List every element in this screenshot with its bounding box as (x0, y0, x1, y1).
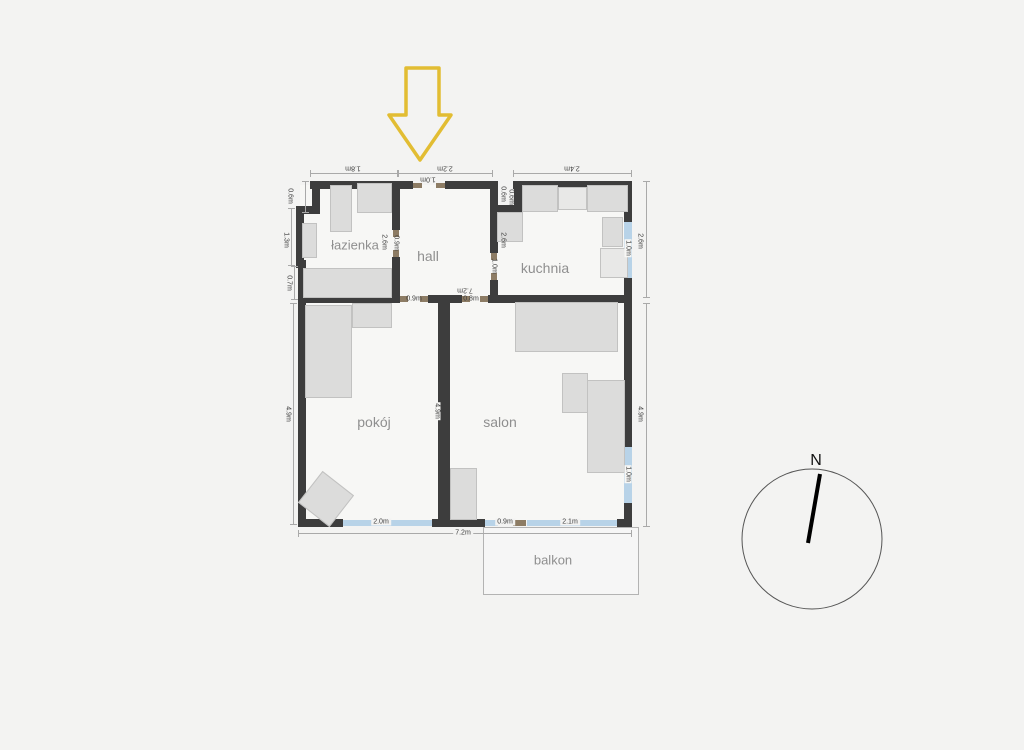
compass-north-label: N (810, 452, 822, 470)
wall-hall-right-lower (490, 280, 498, 303)
living-sofa (515, 302, 618, 352)
entrance-door-mark-right (436, 183, 445, 188)
dim-line-top-kitchen (513, 173, 632, 174)
dim-living-bottom-window: 2.1m (560, 519, 580, 526)
wall-bottom-right-corner (617, 519, 632, 527)
dim-left-room: 4.9m (285, 406, 292, 422)
dim-line-right-kitchen (646, 181, 647, 298)
dim-line-right-living (646, 303, 647, 527)
dim-bathroom-wall: 2.6m (381, 234, 388, 250)
wall-shaft-right (514, 181, 522, 213)
wall-right-middle (624, 278, 632, 447)
dim-divider-wall: 4.9m (434, 402, 441, 420)
dim-right-kitchen: 2.6m (637, 233, 644, 249)
bathroom-cabinet (357, 183, 392, 213)
room-label-balcony: balkon (534, 553, 572, 568)
living-table (450, 468, 477, 520)
compass-icon (738, 466, 886, 612)
bathroom-washer (330, 185, 352, 232)
living-door-mark-right (480, 296, 488, 302)
dim-shaft-width: 0.6m (500, 186, 507, 202)
dim-living-door: 0.8m (463, 296, 479, 303)
wall-hall-left-upper (392, 181, 400, 230)
kitchen-counter-middle (558, 187, 587, 210)
room-label-kitchen: kuchnia (521, 260, 569, 276)
dim-room-door: 0.9m (406, 296, 422, 303)
room-label-living: salon (483, 414, 516, 430)
dim-entrance-door: 1.0m (420, 176, 436, 183)
dim-shaft-height: 0.6m (508, 189, 515, 205)
dim-right-living: 4.9m (637, 406, 644, 422)
dim-line-top-hall (398, 173, 493, 174)
wall-hall-left-lower (392, 257, 400, 303)
bathroom-bathtub (303, 268, 392, 298)
balcony-door (513, 520, 526, 526)
living-couch (587, 380, 625, 473)
dim-kitchen-window: 1.0m (625, 239, 632, 257)
dim-room-window: 2.0m (371, 519, 391, 526)
dim-kitchen-wall: 2.6m (500, 232, 507, 248)
dim-left-lower: 0.7m (286, 275, 293, 291)
kitchen-counter-right (587, 185, 628, 212)
dim-top-hall: 2.2m (437, 165, 453, 172)
dim-line-top-bathroom (310, 173, 398, 174)
dim-line-left-room (293, 303, 294, 525)
wall-mid-stub (428, 295, 462, 303)
room-label-hall: hall (417, 248, 439, 264)
entrance-arrow-icon (383, 60, 459, 168)
dim-top-bathroom: 1.8m (345, 165, 361, 172)
bathroom-sink (302, 223, 317, 258)
wall-hall-top-right (445, 181, 493, 189)
dim-total-width: 7.2m (453, 530, 473, 537)
kitchen-stove (602, 217, 623, 247)
living-couch-corner (562, 373, 588, 413)
room-wardrobe (305, 305, 352, 398)
dim-left-upper: 0.6m (287, 188, 294, 204)
room-label-room: pokój (357, 414, 390, 430)
dim-balcony-door: 0.9m (495, 519, 515, 526)
dim-kitchen-door: 1.0m (491, 258, 498, 274)
dim-hall-interior-width: 7.2m (457, 287, 473, 294)
dim-living-window: 1.0m (625, 465, 632, 483)
dim-line-left-lower (294, 266, 295, 300)
room-label-bathroom: łazienka (331, 238, 379, 253)
dim-left-middle: 1.3m (283, 232, 290, 248)
entrance-door-mark-left (413, 183, 422, 188)
dim-line-left-upper (305, 181, 306, 213)
floor-plan-page: 1.8m 2.2m 2.4m 1.0m 0.6m 0.6m 0.6m 1.3m … (0, 0, 1024, 750)
kitchen-counter-left (522, 185, 558, 212)
dim-bathroom-door: 0.9m (393, 235, 400, 251)
dim-line-left-middle (291, 208, 292, 266)
room-desk (352, 303, 392, 328)
dim-top-kitchen: 2.4m (564, 165, 580, 172)
